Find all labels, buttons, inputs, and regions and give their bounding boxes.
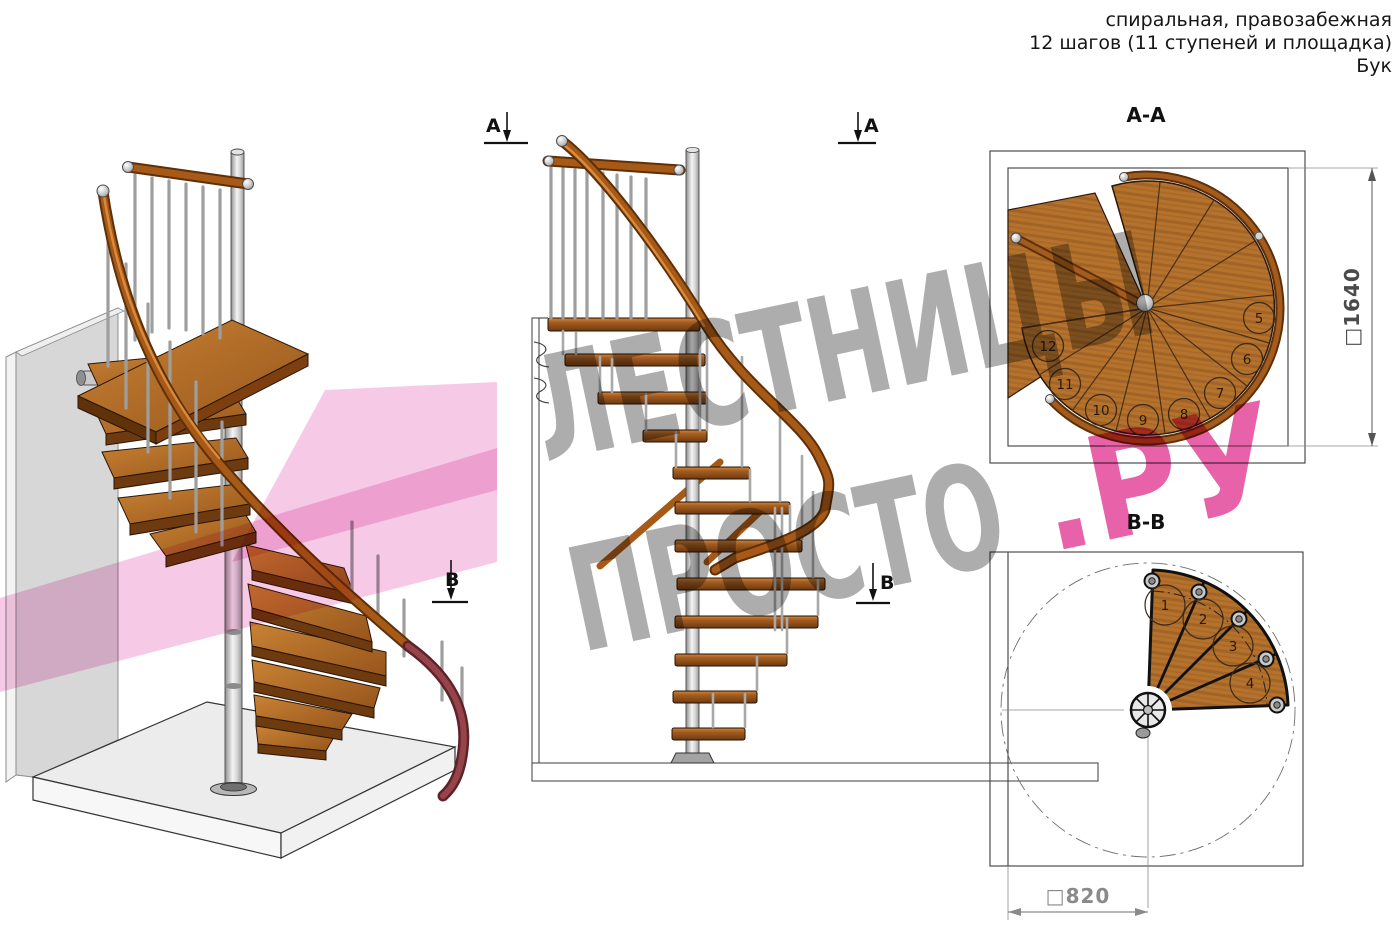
header-line-1: спиральная, правозабежная bbox=[1105, 9, 1392, 31]
marker-letter: В bbox=[445, 569, 459, 591]
step-number: 2 bbox=[1199, 612, 1208, 628]
bb-pole-hub bbox=[1124, 686, 1172, 738]
header-line-2: 12 шагов (11 ступеней и площадка) bbox=[1029, 32, 1392, 54]
section-marker-a-right: А bbox=[838, 112, 879, 143]
bb-step-fan bbox=[1148, 570, 1288, 710]
step-number: 3 bbox=[1229, 639, 1238, 655]
section-bb: В-В 1 2 3 bbox=[990, 510, 1303, 920]
page-header: спиральная, правозабежная 12 шагов (11 с… bbox=[1029, 9, 1392, 77]
step-number: 4 bbox=[1246, 676, 1255, 692]
step-number: 6 bbox=[1243, 352, 1252, 368]
section-marker-a-left: А bbox=[484, 112, 528, 143]
marker-letter: А bbox=[486, 115, 501, 137]
step-number: 1 bbox=[1161, 598, 1170, 614]
header-line-3: Бук bbox=[1356, 55, 1392, 77]
view-3d: В bbox=[0, 149, 497, 858]
section-aa-title: А-А bbox=[1126, 103, 1166, 127]
drawing-sheet: В bbox=[0, 0, 1400, 939]
dimension-label: □1640 bbox=[1340, 267, 1364, 347]
elevation-landing-balusters bbox=[551, 167, 646, 318]
marker-letter: А bbox=[864, 115, 879, 137]
dimension-820: □820 bbox=[1008, 866, 1148, 920]
dimension-label: □820 bbox=[1046, 884, 1111, 908]
step-number: 5 bbox=[1255, 311, 1264, 327]
